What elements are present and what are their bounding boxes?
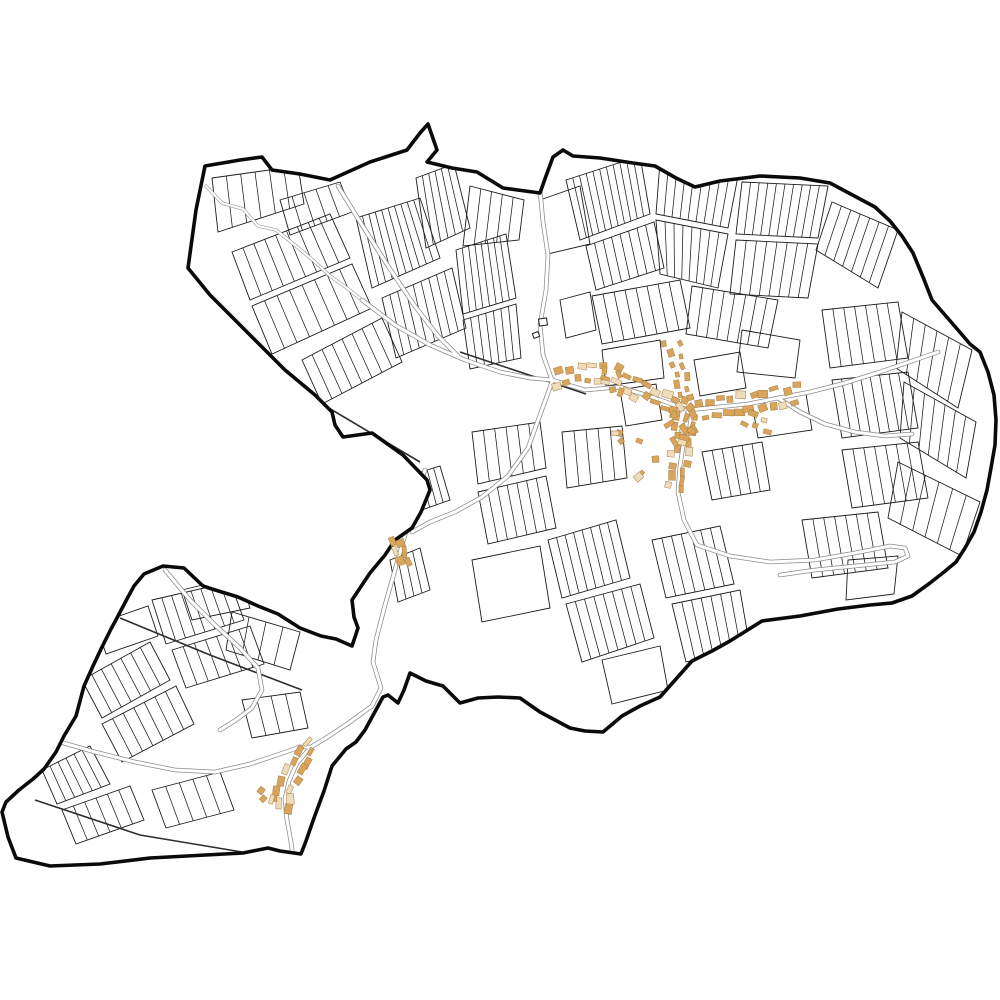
strip-parcel-line: [925, 482, 939, 537]
strip-parcel-line: [704, 231, 711, 285]
strip-parcel-line: [722, 449, 731, 497]
strip-parcel-line: [557, 538, 571, 596]
strip-parcel-line: [58, 762, 75, 797]
strip-parcel-line: [66, 758, 84, 794]
strip-parcel-line: [860, 222, 879, 277]
strip-parcel-line: [96, 798, 110, 832]
strip-parcel-line: [717, 291, 725, 339]
strip-parcel-line: [658, 284, 668, 332]
strip-parcel-line: [869, 226, 888, 283]
road-surface: [412, 382, 552, 532]
strip-parcel-line: [851, 218, 869, 272]
strip-parcel-line: [759, 242, 767, 296]
strip-parcel-line: [779, 243, 788, 297]
strip-parcel-line: [928, 399, 935, 455]
special-building: [539, 318, 548, 326]
strip-parcel-line: [586, 173, 599, 232]
field-block-outline: [212, 166, 304, 232]
strip-parcel-line: [413, 551, 423, 593]
strip-parcel-line: [82, 750, 101, 787]
building: [553, 366, 563, 375]
building-layer: [257, 340, 801, 815]
building: [758, 403, 768, 413]
strip-parcel-line: [435, 171, 448, 238]
building: [702, 415, 709, 420]
strip-parcel-line: [586, 430, 591, 484]
building: [685, 447, 693, 456]
strip-parcel-line: [277, 296, 297, 343]
strip-parcel-line: [352, 334, 372, 378]
strip-parcel-line: [166, 786, 180, 824]
strip-parcel-line: [613, 165, 624, 224]
strip-parcel-line: [769, 184, 777, 236]
strip-parcel-line: [342, 339, 362, 383]
building: [609, 386, 616, 393]
strip-parcel-line: [591, 528, 605, 586]
strip-parcel-line: [517, 483, 527, 535]
strip-parcel-line: [636, 288, 646, 336]
strip-parcel-line: [565, 535, 579, 593]
strip-parcel-line: [785, 184, 793, 236]
building: [257, 786, 266, 795]
building: [684, 386, 689, 392]
field-block-outline: [463, 304, 521, 369]
parcel-outline: [560, 292, 596, 338]
strip-parcel-line: [789, 243, 798, 297]
building: [793, 382, 801, 388]
strip-parcel-line: [889, 374, 899, 431]
building: [673, 380, 680, 389]
strip-parcel-line: [92, 675, 112, 713]
building: [664, 481, 671, 488]
road-surface: [285, 470, 425, 858]
strip-parcel-line: [265, 301, 285, 349]
building: [677, 340, 683, 347]
strip-parcel-line: [507, 485, 517, 537]
building: [712, 412, 722, 418]
strip-parcel-line: [620, 163, 631, 222]
strip-parcel-line: [603, 240, 613, 285]
strip-parcel-line: [748, 297, 757, 345]
building: [752, 422, 759, 428]
strip-parcel-line: [598, 428, 603, 482]
building: [736, 391, 746, 399]
strip-parcel-line: [758, 298, 768, 346]
strip-parcel-line: [469, 246, 477, 310]
strip-parcel-line: [315, 280, 335, 326]
strip-parcel-line: [183, 647, 197, 685]
strip-parcel-line: [750, 241, 757, 295]
field-block-outline: [900, 382, 976, 478]
strip-parcel-line: [919, 393, 925, 449]
strip-parcel-line: [896, 444, 906, 501]
building: [293, 776, 303, 786]
building: [281, 763, 290, 775]
strip-parcel-line: [947, 411, 955, 467]
strip-parcel-line: [292, 196, 302, 230]
strip-parcel-line: [585, 599, 601, 656]
strip-parcel-line: [669, 282, 679, 330]
strip-parcel-line: [865, 305, 874, 362]
field-block-outline: [896, 312, 972, 408]
strip-parcel-line: [483, 430, 489, 481]
strip-parcel-line: [319, 218, 339, 262]
strip-parcel-line: [481, 242, 490, 306]
strip-parcel-line: [50, 766, 66, 801]
strip-parcel-line: [688, 168, 695, 220]
strip-parcel-line: [647, 286, 657, 334]
strip-parcel-line: [113, 719, 133, 757]
strip-parcel-line: [119, 790, 133, 824]
strip-parcel-line: [701, 530, 715, 588]
strip-parcel-line: [769, 242, 777, 296]
strip-parcel-line: [646, 225, 656, 271]
strip-parcel-line: [825, 206, 842, 255]
strip-parcel-line: [594, 597, 609, 654]
strip-parcel-line: [744, 182, 750, 234]
field-block-outline: [152, 582, 244, 644]
strip-parcel-line: [798, 244, 808, 298]
strip-parcel-line: [612, 592, 627, 648]
strip-parcel-line: [682, 225, 683, 279]
strip-parcel-line: [907, 443, 917, 499]
strip-parcel-line: [712, 450, 722, 498]
map-viewport: [0, 0, 1000, 1000]
field-block-outline: [730, 240, 818, 298]
building: [277, 776, 285, 787]
strip-parcel-line: [627, 160, 638, 218]
building: [622, 373, 631, 381]
strip-parcel-line: [573, 178, 587, 238]
strip-parcel-line: [844, 308, 853, 365]
building: [723, 409, 734, 416]
strip-parcel-line: [304, 193, 315, 226]
strip-parcel-line: [258, 622, 266, 660]
parcel-outline: [602, 646, 668, 704]
strip-parcel-line: [917, 325, 926, 382]
strip-parcel-line: [704, 171, 712, 223]
strip-parcel-line: [495, 429, 501, 479]
building: [652, 456, 659, 463]
strip-parcel-line: [937, 337, 948, 394]
strip-parcel-line: [436, 275, 450, 335]
building: [259, 795, 267, 803]
road-casing: [412, 382, 552, 532]
strip-parcel-line: [595, 243, 605, 287]
strip-parcel-line: [870, 376, 880, 433]
building: [660, 405, 669, 411]
strip-parcel-line: [441, 169, 455, 235]
strip-parcel-line: [861, 377, 871, 434]
strip-parcel-line: [401, 204, 420, 267]
building: [686, 394, 694, 401]
building: [565, 366, 574, 374]
strip-parcel-line: [761, 183, 768, 235]
building: [679, 362, 685, 370]
strip-parcel-line: [462, 248, 469, 312]
strip-parcel-line: [414, 474, 422, 510]
strip-parcel-line: [742, 445, 751, 493]
field-block-outline: [463, 186, 524, 246]
building: [680, 468, 684, 476]
strip-parcel-line: [681, 534, 695, 592]
building: [748, 409, 759, 417]
strip-parcel-line: [73, 806, 87, 840]
strip-parcel-line: [843, 214, 861, 266]
strip-parcel-line: [274, 627, 283, 665]
strip-parcel-line: [938, 405, 945, 461]
strip-parcel-line: [691, 600, 704, 658]
building: [769, 385, 779, 391]
strip-parcel-line: [497, 487, 507, 539]
strip-parcel-line: [711, 232, 719, 286]
building: [761, 418, 767, 423]
strip-parcel-line: [620, 234, 630, 279]
strip-parcel-line: [707, 290, 714, 338]
road-surface: [540, 190, 552, 380]
strip-parcel-line: [740, 241, 747, 295]
building: [585, 378, 591, 383]
strip-parcel-line: [899, 373, 909, 429]
strip-parcel-line: [162, 598, 176, 641]
strip-parcel-line: [612, 237, 622, 282]
strip-parcel-line: [833, 309, 841, 367]
strip-parcel-line: [864, 448, 874, 505]
strip-parcel-line: [701, 598, 713, 656]
strip-parcel-line: [834, 210, 851, 261]
building: [783, 387, 792, 396]
strip-parcel-line: [575, 602, 591, 660]
road-surface: [60, 742, 311, 772]
building: [286, 793, 294, 804]
strip-parcel-line: [845, 515, 855, 572]
strip-parcel-line: [322, 350, 342, 394]
strip-parcel-line: [608, 523, 622, 581]
strip-parcel-line: [875, 447, 885, 504]
strip-parcel-line: [444, 271, 458, 331]
field-block-outline: [390, 548, 430, 602]
parcel-outline: [737, 330, 800, 378]
building: [770, 402, 778, 410]
strip-parcel-line: [696, 229, 701, 283]
parcel-outline: [472, 546, 550, 622]
building: [683, 460, 691, 468]
strip-parcel-line: [508, 197, 513, 241]
special-building: [532, 332, 539, 339]
building: [636, 438, 643, 444]
strip-parcel-line: [603, 594, 618, 650]
strip-parcel-line: [885, 445, 895, 502]
building: [679, 354, 683, 359]
strip-parcel-line: [950, 495, 967, 549]
parcel-layer: [35, 156, 980, 858]
strip-parcel-line: [74, 754, 92, 791]
field-block-outline: [242, 692, 308, 738]
strip-parcel-line: [777, 184, 785, 236]
strip-parcel-line: [487, 240, 496, 304]
building: [575, 374, 582, 381]
strip-parcel-line: [241, 174, 247, 223]
strip-parcel-line: [752, 444, 760, 492]
strip-parcel-line: [485, 192, 491, 244]
strip-parcel-line: [257, 698, 267, 736]
strip-parcel-line: [217, 636, 231, 674]
strip-parcel-line: [527, 481, 537, 533]
strip-parcel-line: [536, 478, 546, 530]
strip-parcel-line: [179, 783, 193, 821]
strip-parcel-line: [205, 640, 219, 678]
strip-parcel-line: [493, 311, 499, 363]
building: [727, 396, 734, 403]
strip-parcel-line: [107, 794, 121, 828]
strip-parcel-line: [362, 329, 382, 373]
strip-parcel-line: [671, 536, 685, 594]
strip-parcel-line: [600, 169, 612, 228]
building: [669, 362, 675, 369]
strip-parcel-line: [793, 185, 802, 237]
field-block-outline: [82, 642, 170, 718]
strip-parcel-line: [876, 304, 885, 361]
strip-parcel-blocks: [42, 156, 980, 844]
strip-parcel-line: [696, 288, 703, 336]
strip-parcel-line: [328, 186, 340, 217]
cadastral-map-canvas: [0, 0, 1000, 1000]
strip-parcel-line: [629, 231, 639, 276]
building: [758, 390, 768, 398]
building: [778, 401, 787, 410]
building: [611, 431, 619, 436]
building: [706, 399, 715, 405]
strip-parcel-line: [486, 313, 492, 364]
building: [602, 366, 607, 374]
strip-parcel-line: [957, 416, 966, 472]
field-block-outline: [842, 442, 928, 508]
strip-parcel-line: [517, 425, 523, 473]
building: [763, 429, 772, 435]
strip-parcel-line: [290, 290, 310, 337]
strip-parcel-line: [220, 584, 234, 623]
strip-parcel-line: [810, 186, 820, 238]
building: [272, 786, 280, 796]
strip-parcel-line: [111, 664, 131, 702]
strip-parcel-line: [574, 431, 579, 486]
strip-parcel-line: [131, 653, 151, 691]
building: [578, 363, 588, 370]
strip-parcel-line: [603, 294, 613, 342]
strip-parcel-line: [172, 596, 186, 639]
strip-parcel-line: [856, 514, 866, 571]
building: [667, 450, 675, 457]
building: [268, 794, 275, 804]
building: [284, 803, 293, 814]
building: [694, 399, 703, 407]
strip-parcel-line: [332, 344, 352, 388]
field-block-outline: [822, 302, 908, 368]
strip-parcel-line: [853, 449, 863, 507]
field-block-outline: [382, 268, 466, 358]
road-network: [60, 186, 938, 858]
strip-parcel-line: [599, 525, 613, 583]
strip-parcel-line: [674, 224, 675, 278]
strip-parcel-line: [855, 307, 864, 364]
strip-parcel-line: [140, 647, 160, 685]
strip-parcel-line: [429, 173, 441, 241]
strip-parcel-line: [488, 490, 498, 542]
strip-parcel-line: [508, 306, 513, 359]
strip-parcel-line: [255, 172, 261, 218]
field-block-outline: [478, 476, 556, 544]
strip-parcel-line: [851, 378, 861, 436]
building: [669, 470, 676, 480]
strip-parcel-line: [625, 290, 635, 338]
strip-parcel-line: [672, 165, 677, 217]
strip-parcel-line: [121, 658, 141, 696]
building: [601, 380, 610, 385]
building: [675, 372, 680, 378]
strip-parcel-line: [226, 176, 232, 227]
building: [587, 363, 597, 368]
strip-parcel-line: [193, 779, 207, 817]
field-block-outline: [686, 286, 778, 348]
strip-parcel-line: [579, 176, 592, 236]
strip-parcel-line: [394, 206, 412, 270]
strip-parcel-line: [880, 375, 890, 432]
building: [667, 348, 675, 357]
building: [679, 486, 684, 493]
strip-parcel-line: [937, 489, 952, 544]
strip-parcel-line: [582, 530, 596, 588]
strip-parcel-line: [689, 227, 692, 281]
field-block-outline: [252, 264, 372, 354]
strip-parcel-line: [388, 208, 406, 273]
building: [716, 395, 724, 401]
strip-parcel-line: [606, 167, 618, 226]
road-casing: [285, 470, 425, 858]
strip-parcel-line: [665, 222, 667, 276]
strip-parcel-line: [501, 309, 507, 362]
building: [790, 399, 799, 406]
building: [685, 372, 691, 380]
strip-parcel-line: [302, 285, 322, 331]
strip-parcel-line: [680, 167, 686, 219]
building: [642, 380, 652, 389]
strip-parcel-line: [593, 171, 606, 230]
strip-parcel-line: [316, 189, 327, 221]
strip-parcel-line: [286, 694, 295, 731]
strip-parcel-line: [312, 355, 332, 399]
building: [740, 421, 748, 428]
strip-parcel-line: [887, 303, 897, 359]
strip-parcel-line: [269, 170, 275, 213]
strip-parcel-line: [802, 185, 811, 237]
strip-parcel-line: [752, 183, 759, 235]
strip-parcel-line: [727, 293, 735, 341]
strip-parcel-line: [732, 447, 741, 495]
strip-parcel-line: [475, 244, 483, 308]
strip-parcel-line: [574, 533, 588, 591]
strip-parcel-line: [948, 344, 961, 402]
building: [750, 391, 758, 399]
strip-parcel-line: [927, 331, 937, 388]
strip-parcel-line: [448, 166, 463, 231]
strip-parcel-line: [637, 228, 647, 274]
strip-parcel-line: [906, 318, 913, 374]
strip-parcel-line: [614, 292, 624, 340]
strip-parcel-line: [474, 189, 481, 245]
building: [404, 557, 412, 566]
strip-parcel-line: [271, 696, 280, 733]
building: [661, 340, 667, 347]
